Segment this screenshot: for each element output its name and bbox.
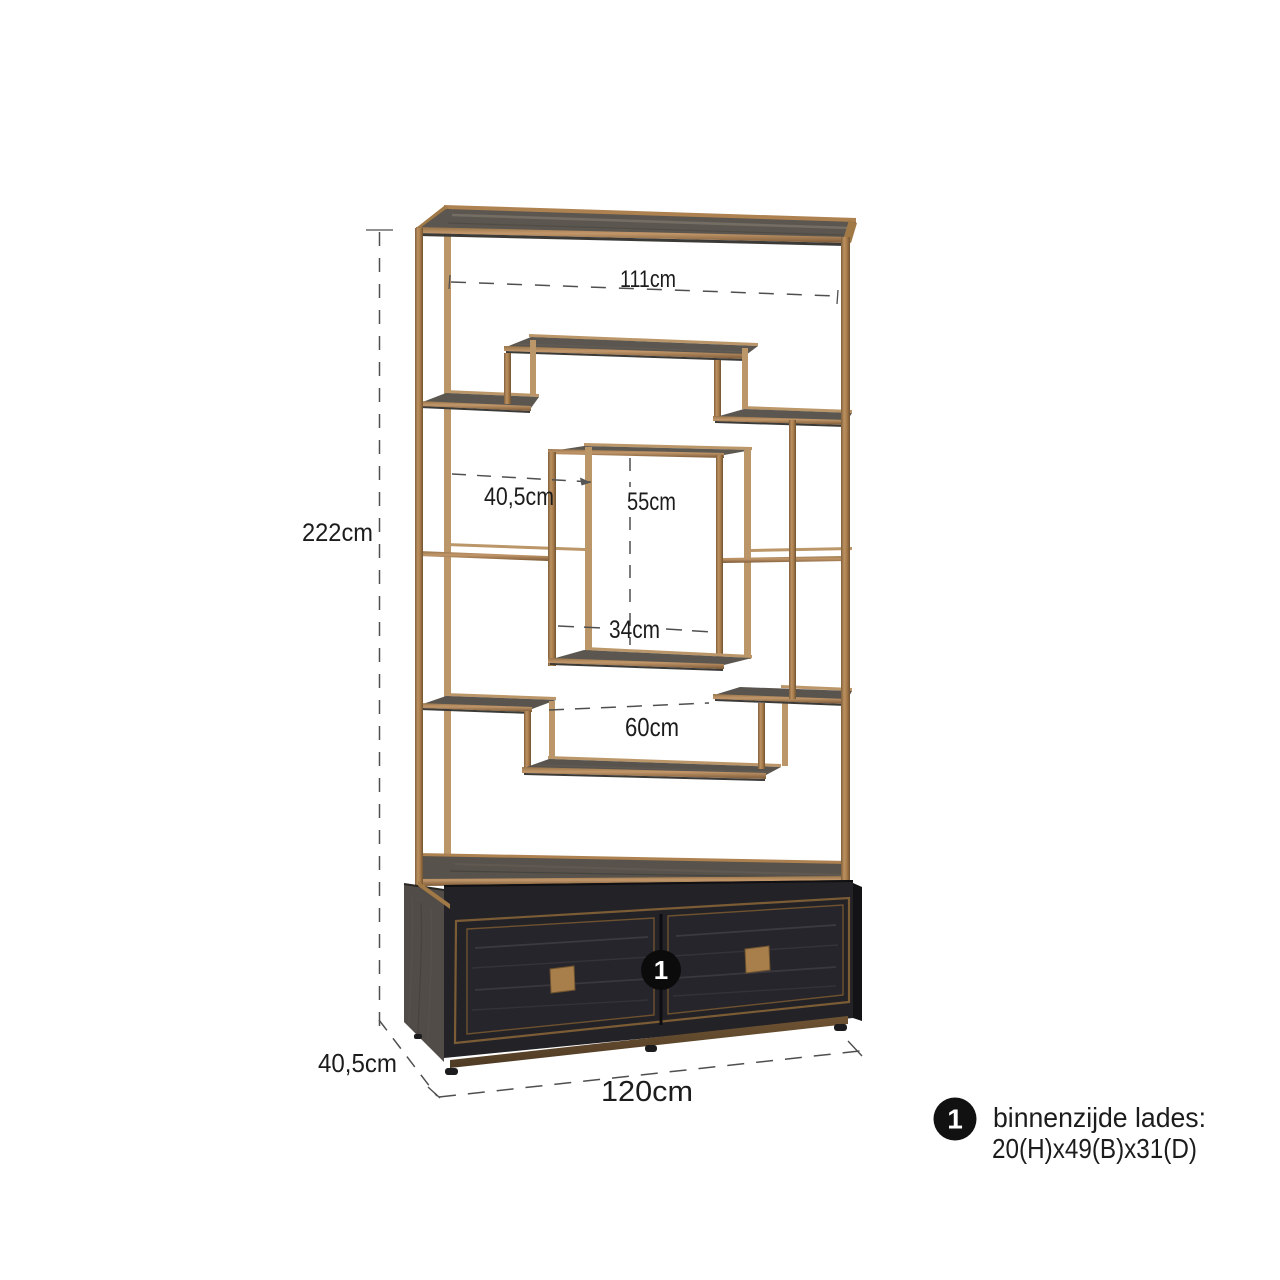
svg-text:1: 1 — [947, 1104, 963, 1135]
svg-text:120cm: 120cm — [601, 1076, 693, 1108]
svg-text:20(H)x49(B)x31(D): 20(H)x49(B)x31(D) — [992, 1133, 1197, 1164]
svg-text:binnenzijde lades:: binnenzijde lades: — [993, 1102, 1206, 1133]
svg-text:55cm: 55cm — [627, 488, 676, 516]
svg-text:34cm: 34cm — [609, 616, 660, 644]
svg-text:222cm: 222cm — [302, 519, 373, 547]
svg-text:60cm: 60cm — [625, 712, 679, 742]
svg-text:111cm: 111cm — [620, 266, 676, 293]
svg-text:1: 1 — [654, 955, 668, 985]
svg-text:40,5cm: 40,5cm — [318, 1048, 397, 1078]
svg-text:40,5cm: 40,5cm — [484, 483, 554, 511]
